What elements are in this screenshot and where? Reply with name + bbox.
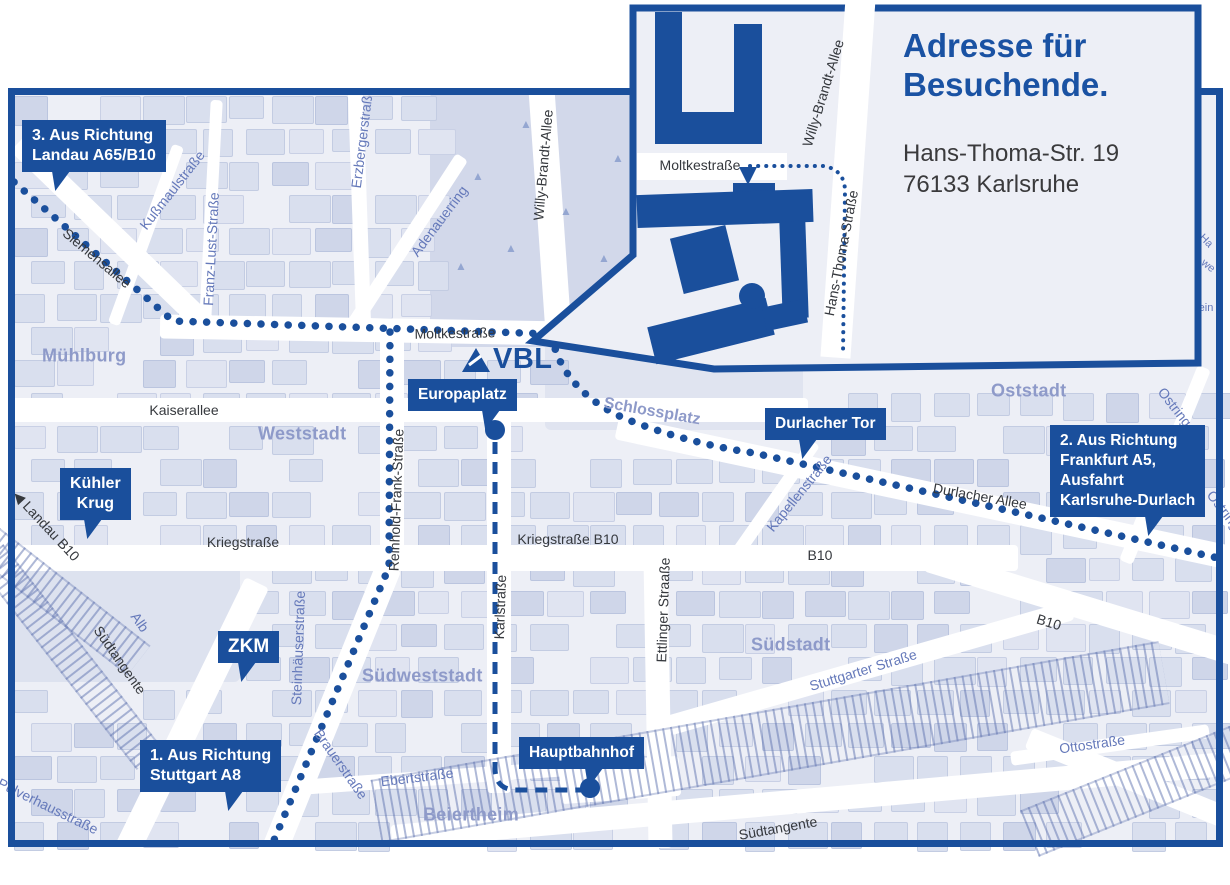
callout-direction-1: 1. Aus RichtungStuttgart A8 (140, 740, 281, 792)
callout-line: 2. Aus Richtung (1060, 431, 1195, 451)
district-label: Mühlburg (42, 346, 126, 367)
street-label: B10 (808, 547, 833, 563)
district-label: Südstadt (751, 635, 830, 656)
street-label: Karlstraße (491, 574, 509, 639)
callout-line: Europaplatz (418, 385, 507, 405)
callout-direction-3: 3. Aus RichtungLandau A65/B10 (22, 120, 166, 172)
callout-line: Durlacher Tor (775, 414, 876, 434)
callout-line: Stuttgart A8 (150, 766, 271, 786)
callout-line: Krug (70, 494, 121, 514)
callout-line: Hauptbahnhof (529, 743, 634, 763)
callout-durlacher-tor: Durlacher Tor (765, 408, 886, 440)
edge-street-fragment: ein (1199, 302, 1214, 314)
street-label: Kriegstraße B10 (517, 531, 618, 547)
callout-line: Frankfurt A5, (1060, 451, 1195, 471)
callout-line: Karlsruhe-Durlach (1060, 491, 1195, 511)
callout-line: Ausfahrt (1060, 471, 1195, 491)
callout-line: Kühler (70, 474, 121, 494)
callout-line: 1. Aus Richtung (150, 746, 271, 766)
district-label: Weststadt (258, 424, 346, 445)
street-label: Moltkestraße (414, 324, 495, 341)
vbl-logo: VBL (462, 346, 553, 372)
callout-kuehler-krug: KühlerKrug (60, 468, 131, 520)
callout-europaplatz: Europaplatz (408, 379, 517, 411)
street-label: Kaiserallee (149, 402, 218, 418)
district-label: Beiertheim (423, 805, 519, 826)
dotted-route (272, 332, 390, 845)
callout-line: 3. Aus Richtung (32, 126, 156, 146)
callout-line: Landau A65/B10 (32, 146, 156, 166)
callout-direction-2: 2. Aus RichtungFrankfurt A5,AusfahrtKarl… (1050, 425, 1205, 517)
district-label: Oststadt (991, 381, 1066, 402)
street-label: Kriegstraße (207, 534, 279, 550)
district-label: Südweststadt (362, 666, 483, 687)
vbl-triangle-icon (462, 348, 490, 372)
callout-line: ZKM (228, 637, 269, 657)
karlsruhe-directions-map: VBL Adresse für Besuchende. Hans-Thoma-S… (0, 0, 1230, 874)
callout-zkm: ZKM (218, 631, 279, 663)
vbl-logo-text: VBL (493, 346, 553, 372)
callout-hauptbahnhof: Hauptbahnhof (519, 737, 644, 769)
